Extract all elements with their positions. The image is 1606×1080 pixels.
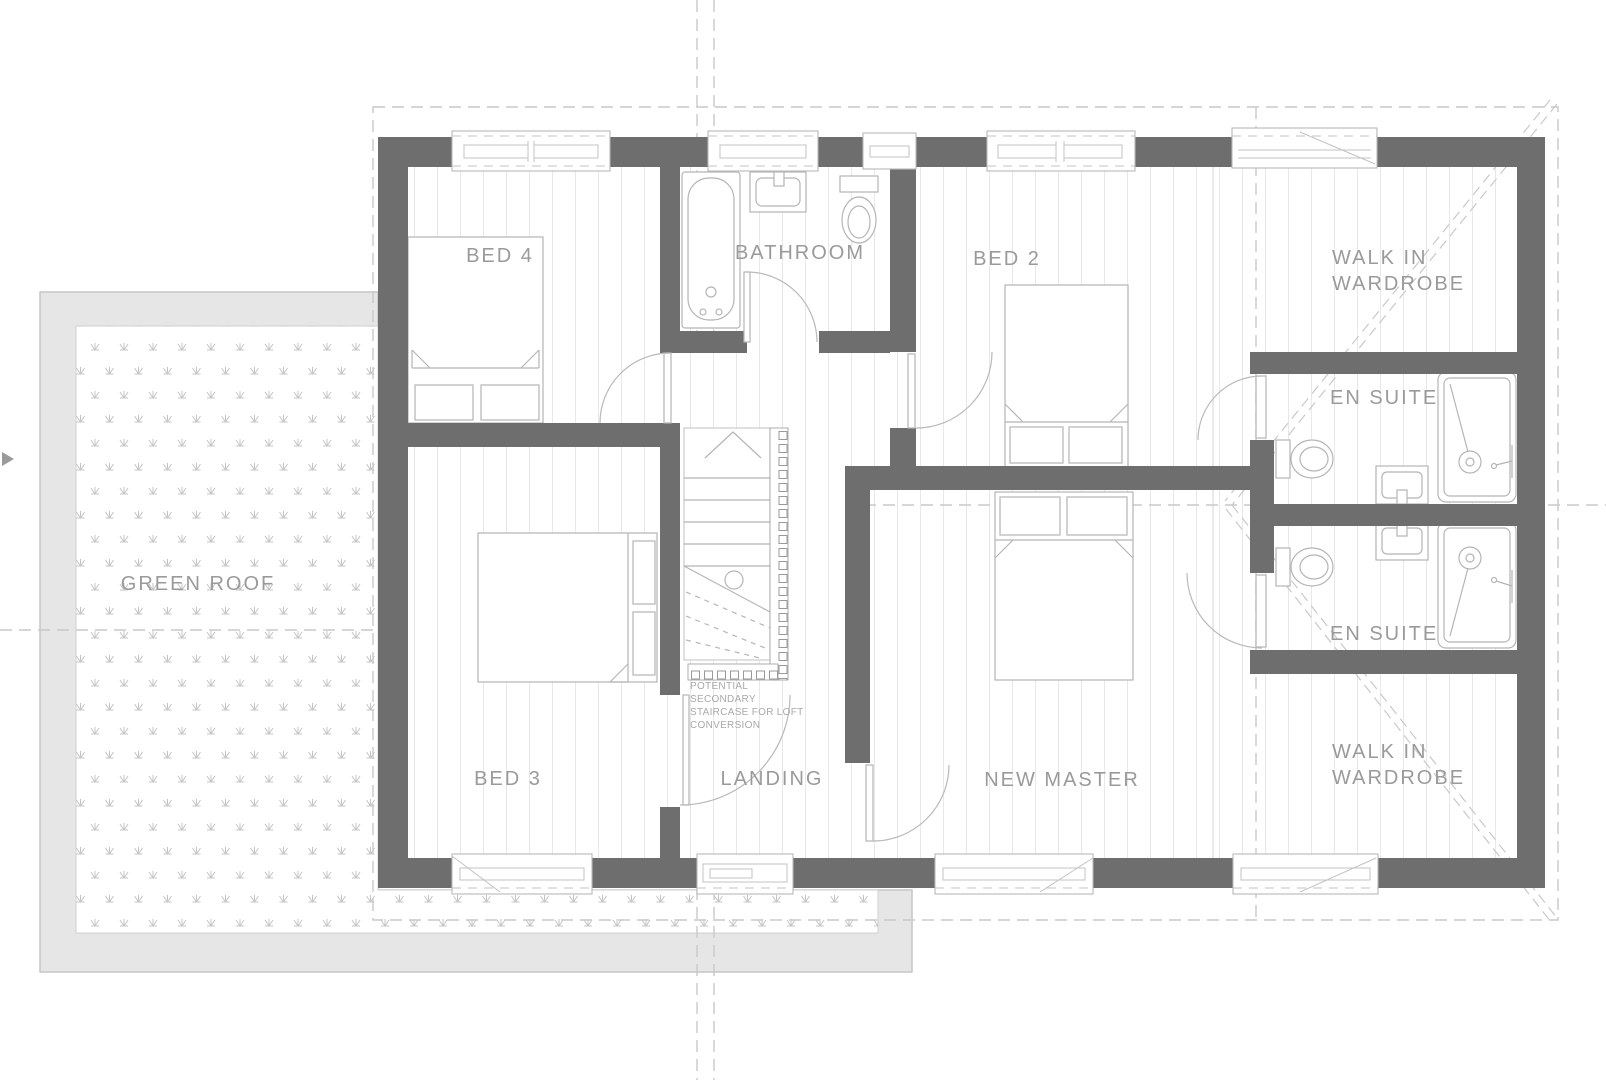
bathroom-sink — [750, 172, 806, 212]
bathroom-toilet — [840, 176, 878, 243]
room-label-green-roof: GREEN ROOF — [121, 573, 275, 595]
pillow — [1000, 497, 1060, 535]
staircase — [684, 428, 788, 680]
window-bathroom-small — [863, 133, 916, 169]
ensuite-bottom-sink — [1376, 522, 1428, 560]
note-line-4: CONVERSION — [690, 720, 760, 731]
room-label-walk-in-wardrobe-bottom: WALK IN — [1332, 741, 1428, 763]
window-bathroom — [708, 131, 818, 171]
bed2-bed — [1005, 285, 1128, 468]
window-bed2 — [987, 131, 1135, 171]
new-master-bed — [995, 492, 1133, 680]
room-label-ensuite-bottom: EN SUITE — [1330, 623, 1438, 645]
room-label-new-master: NEW MASTER — [984, 769, 1140, 791]
pillow — [1069, 427, 1122, 463]
pillow — [415, 385, 473, 420]
ensuite-top-toilet — [1276, 440, 1333, 478]
room-label-ensuite-top: EN SUITE — [1330, 387, 1438, 409]
room-label-bathroom: BATHROOM — [735, 242, 865, 264]
pillow — [1067, 497, 1127, 535]
pillow — [481, 385, 539, 420]
pillow — [633, 541, 655, 604]
ensuite-bottom-shower — [1438, 522, 1516, 648]
bathroom-bathtub — [682, 172, 740, 328]
edge-marker-icon — [2, 452, 14, 466]
room-label-bed4: BED 4 — [466, 245, 534, 267]
room-label-walk-in-wardrobe-top-2: WARDROBE — [1332, 273, 1465, 295]
room-label-landing: LANDING — [721, 768, 824, 790]
stair-balustrade-right — [770, 428, 788, 680]
window-landing — [697, 854, 793, 894]
window-wardrobe-top — [1232, 128, 1377, 168]
bed3-bed — [478, 533, 657, 682]
note-line-1: POTENTIAL — [690, 681, 748, 692]
window-bed4 — [452, 131, 610, 171]
floor-plan-drawing: BED 4 BATHROOM BED 2 WALK IN WARDROBE EN… — [0, 0, 1606, 1080]
ensuite-top-sink — [1376, 466, 1428, 504]
floor-plan-page: BED 4 BATHROOM BED 2 WALK IN WARDROBE EN… — [0, 0, 1606, 1080]
pillow — [1010, 427, 1063, 463]
ensuite-top-shower — [1438, 372, 1516, 502]
window-new-master — [935, 854, 1093, 894]
window-bed3 — [452, 854, 592, 894]
room-label-walk-in-wardrobe-bottom-2: WARDROBE — [1332, 767, 1465, 789]
note-line-3: STAIRCASE FOR LOFT — [690, 707, 804, 718]
note-line-2: SECONDARY — [690, 694, 756, 705]
room-label-bed2: BED 2 — [973, 248, 1041, 270]
room-label-bed3: BED 3 — [474, 768, 542, 790]
ensuite-bottom-toilet — [1276, 548, 1333, 586]
window-wardrobe-bottom — [1233, 854, 1378, 894]
room-label-walk-in-wardrobe-top: WALK IN — [1332, 247, 1428, 269]
stair-balustrade-bottom — [688, 664, 778, 680]
pillow — [633, 612, 655, 675]
